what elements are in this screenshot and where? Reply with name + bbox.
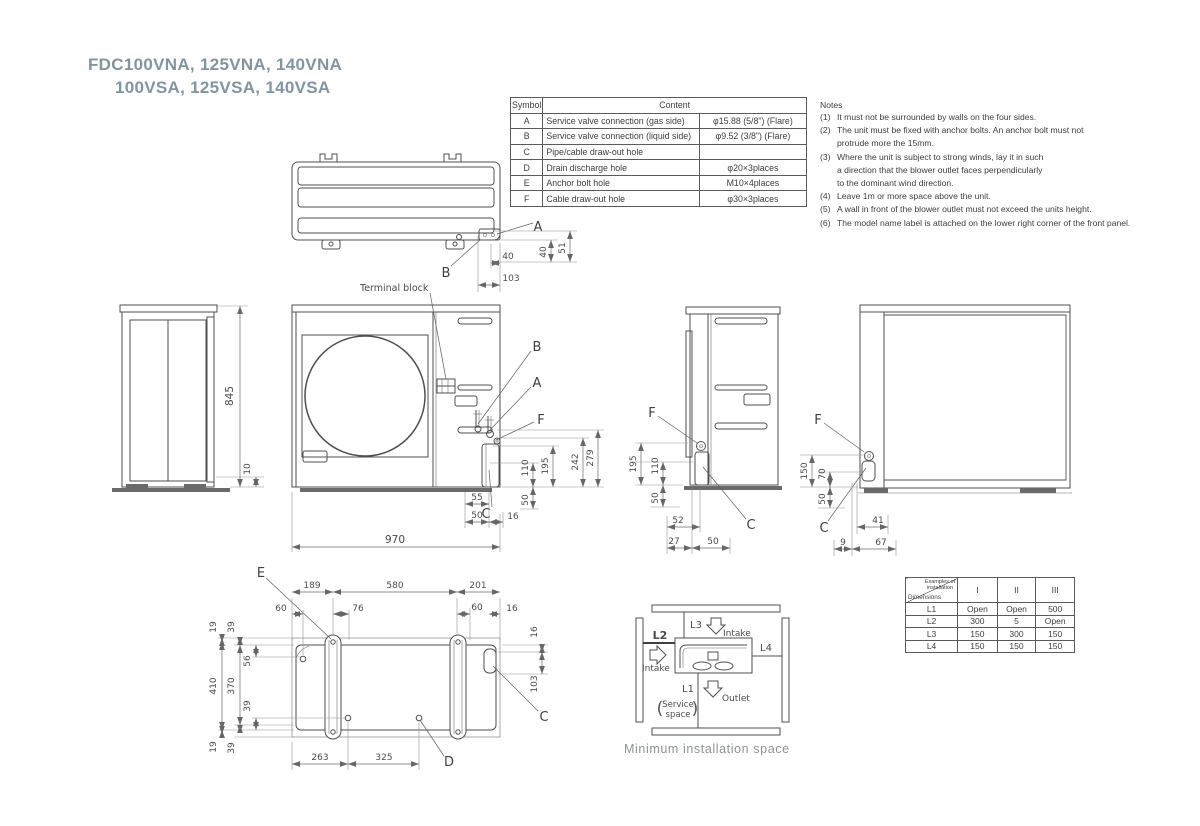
installation-examples-table: Examples of installation Dimensions I II…: [905, 577, 1075, 653]
bottom-dim-19b: 19: [209, 741, 219, 753]
left-side-view: 845 10: [112, 305, 264, 492]
side-dim-110: 110: [651, 457, 661, 474]
content-cell: Service valve connection (liquid side): [543, 129, 699, 145]
note-line: (3)Where the unit is subject to strong w…: [820, 151, 1165, 164]
bottom-dim-56: 56: [243, 655, 253, 667]
rear-mark-c: C: [819, 521, 828, 536]
bottom-dim-263: 263: [311, 753, 328, 763]
note-line: (2)The unit must be fixed with anchor bo…: [820, 124, 1165, 137]
side-dim-50b: 50: [707, 537, 719, 547]
note-line: protrude more the 15mm.: [820, 137, 1165, 150]
symbol-cell: B: [511, 129, 543, 145]
value-cell: φ20×3places: [699, 160, 806, 176]
notes-block: Notes (1)It must not be surrounded by wa…: [820, 100, 1165, 230]
front-view: Terminal block B A F C 110 50 195 242 27…: [292, 283, 604, 552]
table-row: A Service valve connection (gas side) φ1…: [511, 113, 807, 129]
front-dim-110: 110: [521, 459, 531, 476]
note-line: (6)The model name label is attached on t…: [820, 217, 1165, 230]
symbol-cell: A: [511, 113, 543, 129]
bottom-dim-189: 189: [303, 581, 320, 591]
install-l1-label: L1: [682, 684, 694, 695]
col-header: I: [958, 578, 998, 603]
bottom-dim-39b: 39: [243, 700, 253, 712]
front-dim-242: 242: [571, 453, 581, 470]
top-dim-40h: 40: [539, 246, 549, 258]
install-space-diagram: L2 L3 L4 L1 Intake Intake Outlet ( Servi…: [636, 605, 789, 735]
left-dim-845: 845: [224, 386, 236, 406]
value-cell: M10×4places: [699, 175, 806, 191]
front-mark-f: F: [537, 413, 544, 428]
bottom-dim-325: 325: [375, 753, 392, 763]
install-l2-label: L2: [653, 629, 668, 642]
rear-mark-f: F: [814, 413, 821, 428]
model-title-line2: 100VSA, 125VSA, 140VSA: [115, 76, 342, 99]
side-mark-f: F: [648, 406, 655, 421]
front-mark-a: A: [533, 376, 542, 391]
table-row: E Anchor bolt hole M10×4places: [511, 175, 807, 191]
front-dim-50b: 50: [471, 511, 483, 521]
install-outlet-label: Outlet: [722, 694, 750, 704]
rear-dim-70: 70: [818, 468, 828, 480]
note-line: (4)Leave 1m or more space above the unit…: [820, 190, 1165, 203]
bottom-mark-e: E: [257, 566, 265, 581]
bottom-mark-d: D: [444, 755, 454, 770]
col-header: II: [997, 578, 1036, 603]
symbol-cell: C: [511, 144, 543, 160]
side-mark-c: C: [746, 518, 755, 533]
bottom-dim-201: 201: [469, 581, 486, 591]
value-cell: φ30×3places: [699, 191, 806, 207]
table-row: L3 150 300 150: [906, 628, 1075, 641]
install-l4-label: L4: [760, 643, 772, 654]
symbol-cell: E: [511, 175, 543, 191]
front-mark-b: B: [533, 340, 542, 355]
bottom-dim-103: 103: [530, 675, 540, 692]
corner-cell: Examples of installation Dimensions: [906, 578, 958, 603]
top-mark-a: A: [534, 220, 543, 235]
table-row: L2 300 5 Open: [906, 615, 1075, 628]
table-row: L1 Open Open 500: [906, 603, 1075, 616]
rear-dim-150: 150: [800, 462, 810, 479]
front-dim-970: 970: [385, 534, 405, 546]
bottom-dim-370: 370: [227, 677, 237, 694]
side-dim-52: 52: [672, 516, 683, 526]
symbol-table-header-symbol: Symbol: [511, 98, 543, 114]
top-dim-40w: 40: [502, 252, 514, 262]
symbol-table-header-content: Content: [543, 98, 807, 114]
bottom-view: E D C 189 580 201 60 76 60 16 19 410 19 …: [209, 566, 549, 770]
install-l3-label: L3: [690, 620, 702, 631]
bottom-dim-39c: 39: [227, 742, 237, 754]
left-dim-10: 10: [243, 463, 253, 475]
side-dim-27: 27: [668, 537, 679, 547]
note-line: to the dominant wind direction.: [820, 177, 1165, 190]
rear-dim-9: 9: [840, 538, 846, 548]
rear-dim-67: 67: [875, 538, 886, 548]
service-space-line2: space: [666, 710, 691, 720]
content-cell: Service valve connection (gas side): [543, 113, 699, 129]
top-dim-51: 51: [558, 242, 568, 253]
table-row: F Cable draw-out hole φ30×3places: [511, 191, 807, 207]
corner-dimensions-label: Dimensions: [908, 594, 941, 601]
note-line: a direction that the blower outlet faces…: [820, 164, 1165, 177]
symbol-cell: D: [511, 160, 543, 176]
notes-heading: Notes: [820, 100, 1165, 110]
bottom-dim-60b: 60: [471, 603, 483, 613]
table-row: B Service valve connection (liquid side)…: [511, 129, 807, 145]
bottom-dim-16r: 16: [530, 626, 540, 638]
service-space-line1: Service: [662, 700, 693, 710]
install-intake-left-label: Intake: [642, 664, 670, 674]
bottom-dim-39a: 39: [227, 621, 237, 633]
content-cell: Anchor bolt hole: [543, 175, 699, 191]
value-cell: φ15.88 (5/8") (Flare): [699, 113, 806, 129]
value-cell: [699, 144, 806, 160]
front-dim-279: 279: [586, 449, 596, 466]
bottom-dim-76: 76: [352, 604, 364, 614]
top-mark-b: B: [442, 266, 451, 281]
bottom-dim-19a: 19: [209, 621, 219, 633]
note-line: (5)A wall in front of the blower outlet …: [820, 203, 1165, 216]
symbol-table: Symbol Content A Service valve connectio…: [510, 97, 807, 207]
content-cell: Cable draw-out hole: [543, 191, 699, 207]
side-dim-50v: 50: [651, 492, 661, 504]
front-dim-195: 195: [541, 457, 551, 474]
rear-dim-41: 41: [872, 516, 883, 526]
note-line: (1)It must not be surrounded by walls on…: [820, 111, 1165, 124]
rear-view: F C 150 70 50 41 9 67: [800, 305, 1072, 556]
terminal-block-label: Terminal block: [359, 283, 429, 294]
service-paren-right: ): [692, 699, 699, 719]
content-cell: Pipe/cable draw-out hole: [543, 144, 699, 160]
table-row: L4 150 150 150: [906, 640, 1075, 653]
value-cell: φ9.52 (3/8") (Flare): [699, 129, 806, 145]
bottom-dim-16a: 16: [506, 604, 518, 614]
install-space-caption: Minimum installation space: [624, 742, 790, 756]
rear-dim-50: 50: [818, 493, 828, 505]
table-row: D Drain discharge hole φ20×3places: [511, 160, 807, 176]
model-title-line1: FDC100VNA, 125VNA, 140VNA: [88, 53, 342, 76]
side-dim-195: 195: [629, 455, 639, 472]
front-dim-50v: 50: [521, 494, 531, 506]
content-cell: Drain discharge hole: [543, 160, 699, 176]
col-header: III: [1036, 578, 1075, 603]
bottom-mark-c: C: [539, 710, 548, 725]
symbol-cell: F: [511, 191, 543, 207]
front-dim-55: 55: [471, 493, 482, 503]
install-intake-top-label: Intake: [723, 629, 751, 639]
bottom-dim-60a: 60: [275, 604, 287, 614]
front-dim-16: 16: [507, 512, 519, 522]
model-title: FDC100VNA, 125VNA, 140VNA 100VSA, 125VSA…: [88, 53, 342, 99]
bottom-dim-410: 410: [209, 677, 219, 694]
table-row: C Pipe/cable draw-out hole: [511, 144, 807, 160]
bottom-dim-580: 580: [386, 581, 403, 591]
top-dim-103: 103: [502, 274, 519, 284]
corner-examples-label: Examples of installation: [925, 579, 955, 591]
right-side-view: F C 195 110 50 52 27 50: [629, 307, 782, 554]
